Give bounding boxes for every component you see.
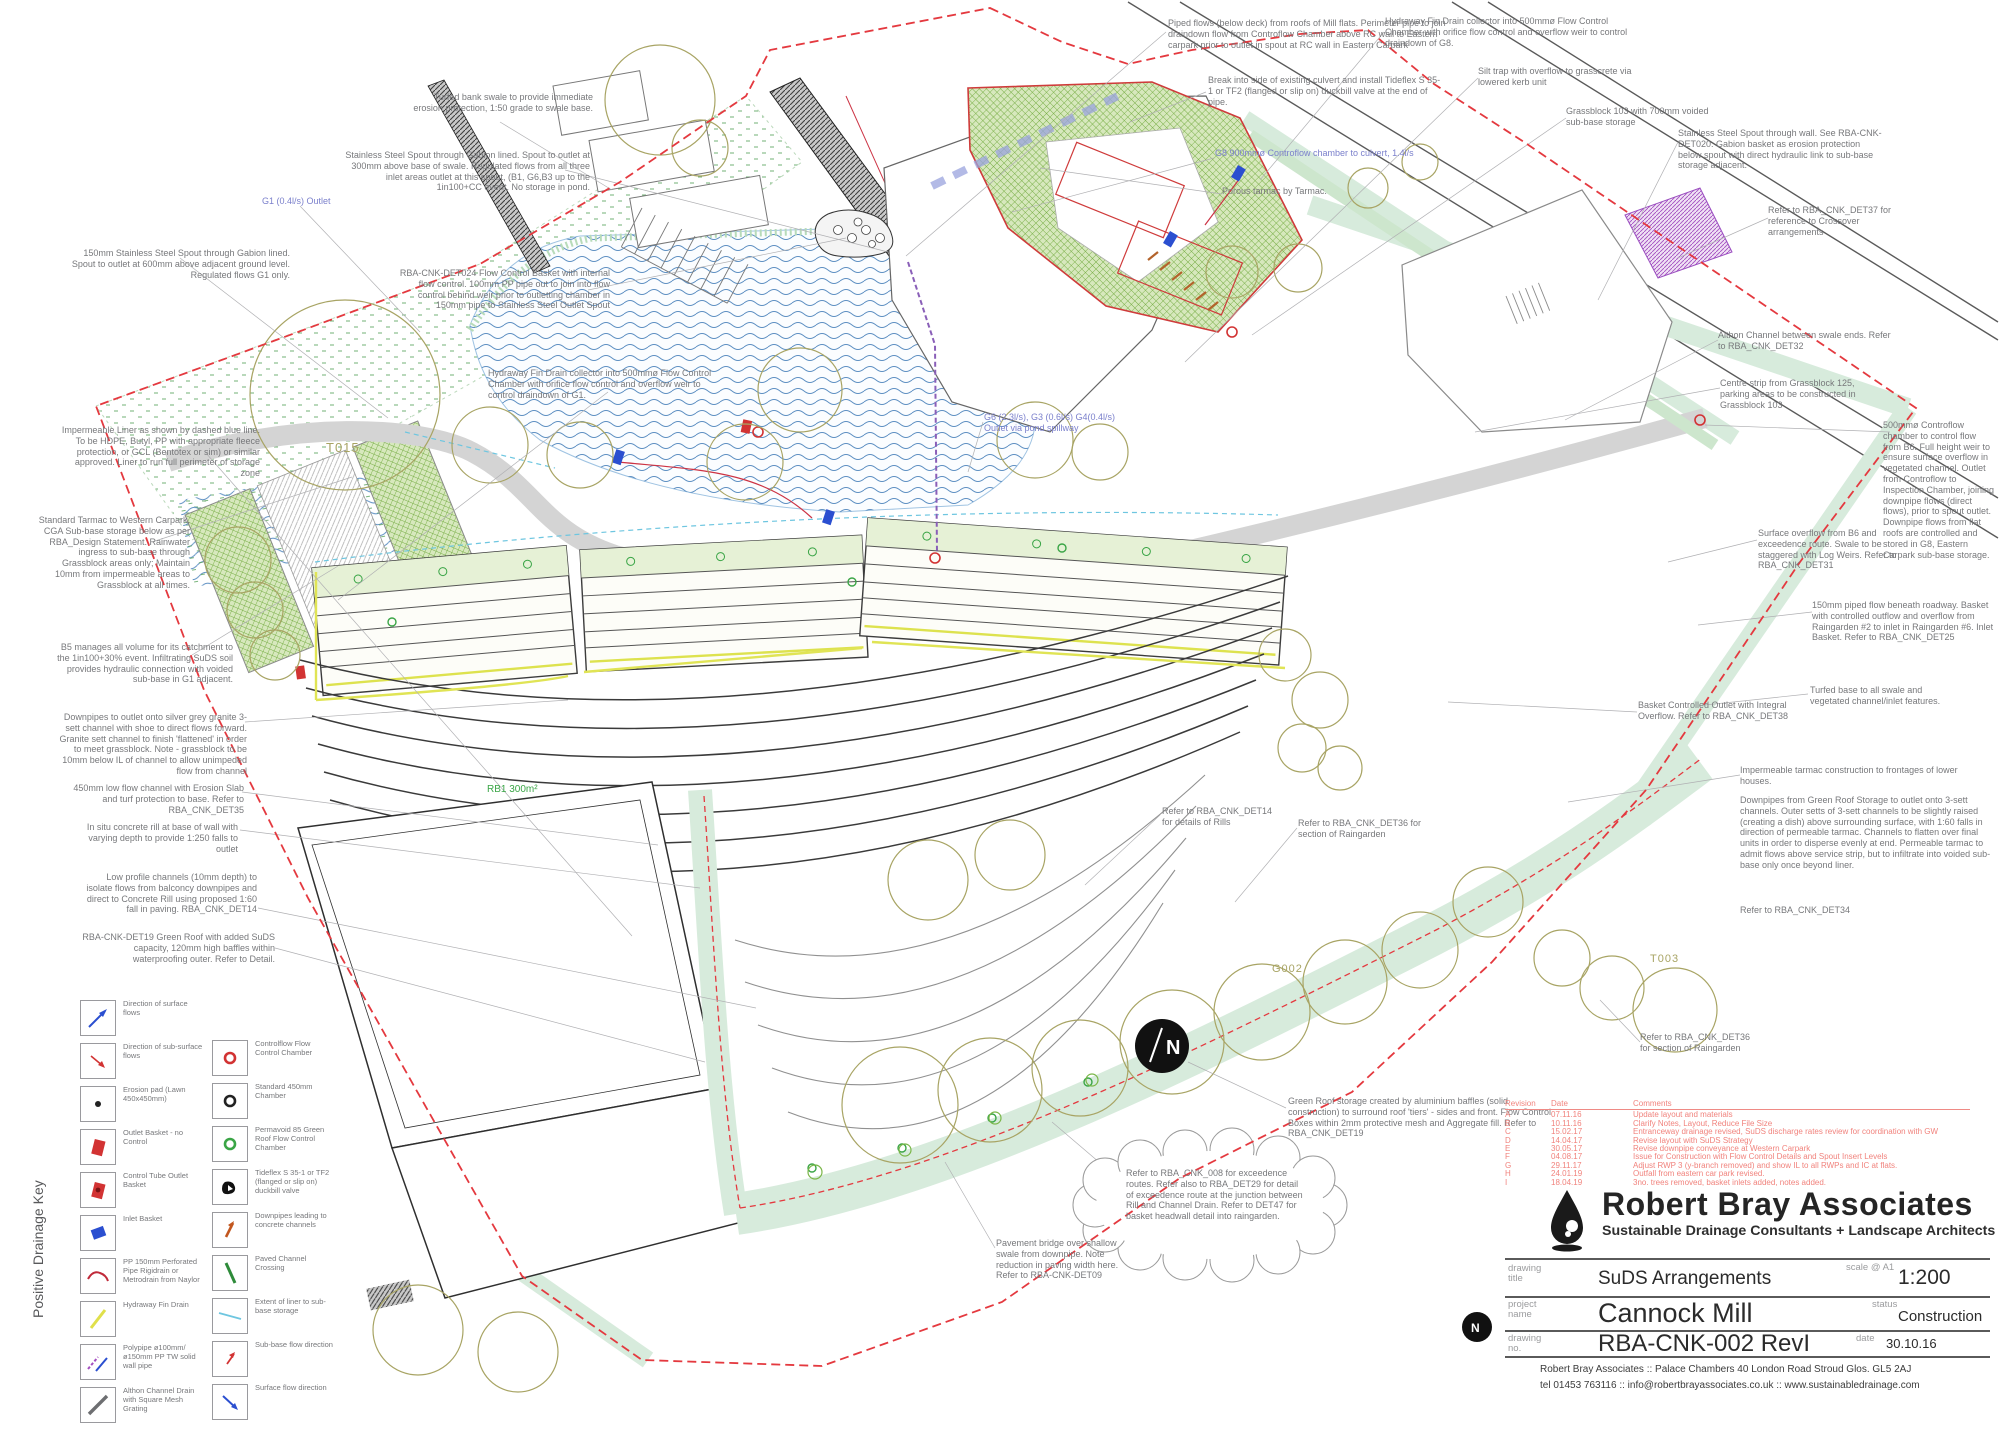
scale-value: 1:200 xyxy=(1898,1266,1951,1290)
annotation-note: Impermeable tarmac construction to front… xyxy=(1740,765,1980,787)
surface-flow-direction-icon xyxy=(212,1384,248,1420)
erosion-pad-icon xyxy=(80,1086,116,1122)
legend-right-column: Controlflow Flow Control Chamber Standar… xyxy=(212,1040,335,1427)
company-tagline: Sustainable Drainage Consultants + Lands… xyxy=(1602,1223,1995,1239)
annotation-note: RBA-CNK-DET024 Flow Control Basket with … xyxy=(398,268,610,311)
company-contact: tel 01453 763116 :: info@robertbrayassoc… xyxy=(1540,1380,1920,1391)
tideflex-valve-icon xyxy=(212,1169,248,1205)
project-name: Cannock Mill xyxy=(1598,1298,1753,1329)
controlflow-chamber-icon xyxy=(212,1040,248,1076)
annotation-note: Hydraway Fin Drain collector into 500mmø… xyxy=(1385,16,1630,48)
status-value: Construction xyxy=(1898,1308,1982,1325)
company-logo: Robert Bray Associates Sustainable Drain… xyxy=(1544,1188,1995,1257)
annotation-note: RBA-CNK-DET19 Green Roof with added SuDS… xyxy=(80,932,275,964)
annotation-note: G1 (0.4l/s) Outlet xyxy=(262,196,357,207)
annotation-note: G6 (2.3l/s), G3 (0.6l/s) G4(0.4l/s) Outl… xyxy=(984,412,1119,434)
annotation-note: Break into side of existing culvert and … xyxy=(1208,75,1443,107)
outlet-basket-icon xyxy=(80,1129,116,1165)
surface-flow-arrow-icon xyxy=(80,1000,116,1036)
annotation-note: Turfed base to all swale and vegetated c… xyxy=(1810,685,1950,707)
annotation-note: Refer to RBA_CNK_DET36 for section of Ra… xyxy=(1298,818,1423,840)
annotation-note: G8 900mmø Controflow chamber to culvert,… xyxy=(1215,148,1415,159)
annotation-note: Stainless Steel Spout through Gabion lin… xyxy=(345,150,590,193)
inlet-basket-icon xyxy=(80,1215,116,1251)
annotation-note: Standard Tarmac to Western Carpark, CGA … xyxy=(38,515,190,591)
svg-text:N: N xyxy=(1166,1037,1180,1059)
drawing-no-label: drawing no. xyxy=(1508,1334,1550,1355)
revision-table: Revision Date Comments A07.11.16Update l… xyxy=(1505,1100,1970,1187)
lawn-terraces xyxy=(298,782,742,1298)
annotation-note: Low profile channels (10mm depth) to iso… xyxy=(85,872,257,915)
annotation-note: 150mm piped flow beneath roadway. Basket… xyxy=(1812,600,1997,643)
annotation-note: Silt trap with overflow to grasscrete vi… xyxy=(1478,66,1663,88)
drawing-no: RBA-CNK-002 RevI xyxy=(1598,1330,1810,1358)
subsurface-flow-arrow-icon xyxy=(80,1043,116,1079)
perforated-pipe-icon xyxy=(80,1258,116,1294)
annotation-note: Stainless Steel Spout through wall. See … xyxy=(1678,128,1883,171)
annotation-note: Downpipes from Green Roof Storage to out… xyxy=(1740,795,1992,871)
svg-text:N: N xyxy=(1471,1321,1480,1335)
subbase-flow-arrow-icon xyxy=(212,1341,248,1377)
annotation-note: Turfed bank swale to provide immediate e… xyxy=(408,92,593,114)
date-label: date xyxy=(1856,1334,1875,1344)
annotation-note: Refer to RBA_CNK_DET14 for details of Ri… xyxy=(1162,806,1282,828)
annotation-note: 150mm Stainless Steel Spout through Gabi… xyxy=(65,248,290,280)
scale-label: scale @ A1 xyxy=(1846,1263,1894,1273)
polypipe-icon xyxy=(80,1344,116,1380)
annotation-note: Hydraway Fin Drain collector into 500mmø… xyxy=(488,368,713,400)
annotation-note: B5 manages all volume for its catchment … xyxy=(48,642,233,685)
annotation-note: Centre strip from Grassblock 125, parkin… xyxy=(1720,378,1865,410)
annotation-note: Surface overflow from B6 and exceedence … xyxy=(1758,528,1918,571)
revision-table-header: Revision Date Comments xyxy=(1505,1100,1970,1110)
legend-title: Positive Drainage Key xyxy=(30,1180,46,1318)
north-arrow-small: N xyxy=(1462,1312,1492,1342)
annotation-note: Pavement bridge over shallow swale from … xyxy=(996,1238,1131,1281)
hydraway-fin-drain-icon xyxy=(80,1301,116,1337)
annotation-note: Refer to RBA_CNK_DET36 for section of Ra… xyxy=(1640,1032,1760,1054)
legend-left-column: Direction of surface flows Direction of … xyxy=(80,1000,203,1430)
date-value: 30.10.16 xyxy=(1886,1336,1937,1351)
project-name-label: project name xyxy=(1508,1300,1550,1321)
water-drop-logo-icon xyxy=(1544,1188,1590,1257)
crossover-ramp xyxy=(1625,188,1732,278)
cloud-note: Refer to RBA_CNK_008 for exceedence rout… xyxy=(1126,1168,1304,1222)
company-address: Robert Bray Associates :: Palace Chamber… xyxy=(1540,1364,1911,1375)
control-tube-outlet-basket-icon xyxy=(80,1172,116,1208)
tree-label-t003: T003 xyxy=(1650,953,1679,965)
annotation-note: Impermeable Liner as shown by dashed blu… xyxy=(60,425,260,479)
paved-channel-crossing-icon xyxy=(212,1255,248,1291)
drawing-title: SuDS Arrangements xyxy=(1598,1268,1771,1290)
annotation-note: 450mm low flow channel with Erosion Slab… xyxy=(72,783,244,815)
annotation-note: Basket Controlled Outlet with Integral O… xyxy=(1638,700,1808,722)
annotation-note: Refer to RBA_CNK_DET34 xyxy=(1740,905,1940,916)
permavoid-chamber-icon xyxy=(212,1126,248,1162)
annotation-note: In situ concrete rill at base of wall wi… xyxy=(76,822,238,854)
standard-chamber-icon xyxy=(212,1083,248,1119)
annotation-note: Refer to RBA_CNK_DET37 for reference to … xyxy=(1768,205,1913,237)
company-name: Robert Bray Associates xyxy=(1602,1188,1995,1220)
tree-label-g002: G002 xyxy=(1272,963,1303,975)
althon-channel-drain-icon xyxy=(80,1387,116,1423)
annotation-note: Althon Channel between swale ends. Refer… xyxy=(1718,330,1893,352)
tree-label-t015: T015 xyxy=(326,440,360,455)
north-arrow: N xyxy=(1135,1019,1189,1073)
raingarden-label-rb1: RB1 300m² xyxy=(487,784,538,795)
liner-extent-icon xyxy=(212,1298,248,1334)
drawing-sheet: { "plan_labels":{ "t015":"T015","t003":"… xyxy=(0,0,2000,1413)
annotation-note: Porous tarmac by Tarmac. xyxy=(1222,186,1332,197)
downpipe-to-channel-icon xyxy=(212,1212,248,1248)
annotation-note: Grassblock 103 with 700mm voided sub-bas… xyxy=(1566,106,1716,128)
drawing-title-label: drawing title xyxy=(1508,1264,1550,1285)
annotation-note: Downpipes to outlet onto silver grey gra… xyxy=(55,712,247,777)
status-label: status xyxy=(1872,1300,1897,1310)
